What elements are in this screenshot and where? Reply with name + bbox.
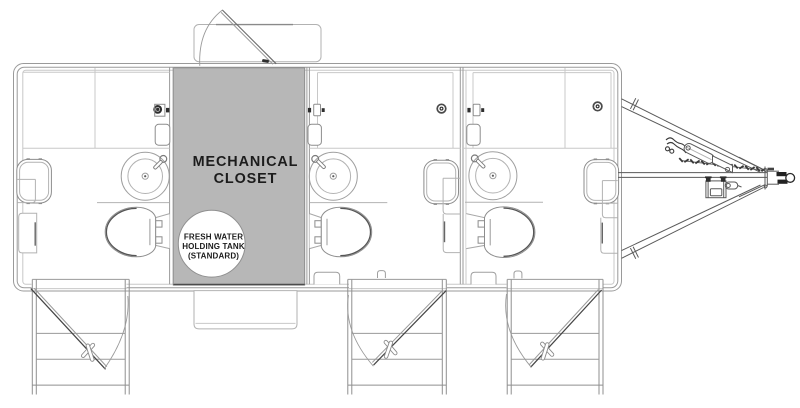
svg-text:HOLDING TANK: HOLDING TANK [182, 242, 245, 251]
svg-text:FRESH WATER: FRESH WATER [184, 232, 243, 241]
svg-text:(STANDARD): (STANDARD) [188, 251, 239, 260]
svg-text:MECHANICAL: MECHANICAL [193, 154, 299, 170]
svg-text:CLOSET: CLOSET [214, 171, 278, 187]
